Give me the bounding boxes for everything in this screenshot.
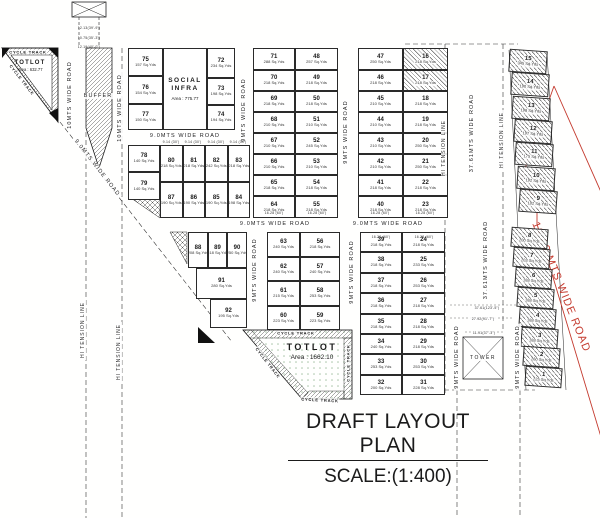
buffer-strip [86, 48, 112, 168]
plot-area: 250 Sq.Yds [370, 60, 391, 65]
plot-area: 210 Sq.Yds [370, 165, 391, 170]
plot-25: 25233 Sq.Yds [402, 252, 445, 272]
buffer-label: BUFFER [82, 93, 115, 99]
plot-area: 190 Sq.Yds [518, 85, 541, 91]
totlot-area: Area : 1662.10 [268, 354, 356, 361]
plot-area: 253 Sq.Yds [413, 365, 434, 370]
plot-area: 190 Sq.Yds [206, 201, 227, 206]
plot-57: 57240 Sq.Yds [300, 257, 340, 282]
plot-area: 210 Sq.Yds [264, 123, 285, 128]
plot-34: 34240 Sq.Yds [360, 334, 402, 354]
plot-area: 182 Sq.Yds [526, 201, 549, 207]
plot-area: 200 Sq.Yds [518, 238, 541, 244]
totlot-name: TOTLOT [268, 342, 356, 352]
plot-81: 81218 Sq.Yds [183, 145, 206, 182]
plot-area: 218 Sq.Yds [414, 60, 437, 65]
plot-29: 29218 Sq.Yds [402, 334, 445, 354]
plot-area: 198 Sq.Yds [228, 201, 249, 206]
plot-area: 210 Sq.Yds [370, 144, 391, 149]
plot-82: 82242 Sq.Yds [205, 145, 228, 182]
dimension-label: 16.28 (60') [416, 211, 435, 215]
road-label: 37.61MTS WIDE ROAD [483, 219, 489, 301]
plot-80: 80218 Sq.Yds [160, 145, 183, 182]
dimension-label: 12.13(39'-9") [78, 26, 101, 30]
plot-74: 74194 Sq.Yds [207, 105, 235, 130]
plot-area: 240 Sq.Yds [273, 270, 294, 275]
road-label: 9MTS WIDE ROAD [454, 323, 460, 390]
plot-area: 233 Sq.Yds [413, 263, 434, 268]
plot-66: 66210 Sq.Yds [253, 154, 295, 175]
plot-43: 43210 Sq.Yds [358, 133, 403, 154]
plot-area: 208 Sq.Yds [188, 251, 208, 256]
plot-35: 35218 Sq.Yds [360, 314, 402, 334]
plot-area: 218 Sq.Yds [183, 164, 204, 169]
plot-68: 68210 Sq.Yds [253, 112, 295, 133]
plot-22: 22218 Sq.Yds [403, 175, 448, 196]
plot-47: 47250 Sq.Yds [358, 48, 403, 70]
plot-area: 218 Sq.Yds [415, 123, 436, 128]
plot-area: 218 Sq.Yds [370, 186, 391, 191]
social-infra-area: Area : 775.77 [171, 96, 198, 101]
plot-area: 188 Sq.Yds [528, 337, 551, 343]
dimension-label: 9.14 (30') [208, 140, 225, 144]
plot-83: 83218 Sq.Yds [228, 145, 251, 182]
plot-area: 260 Sq.Yds [530, 357, 553, 363]
plot-91: 91280 Sq.Yds [196, 268, 247, 299]
plan-scale: SCALE:(1:400) [288, 466, 488, 488]
plan-title: DRAFT LAYOUT PLAN [288, 410, 488, 461]
road-label: 9MTS WIDE ROAD [343, 98, 349, 165]
plot-area: 218 Sq.Yds [371, 263, 392, 268]
tower-label: TOWER [469, 355, 497, 361]
plot-78: 78140 Sq.Yds [128, 145, 160, 172]
dimension-label: 16.28 (60') [372, 235, 391, 239]
plot-6: 6188 Sq.Yds [514, 267, 552, 289]
plot-area: 210 Sq.Yds [306, 165, 327, 170]
plot-area: 218 Sq.Yds [413, 304, 434, 309]
title-block: DRAFT LAYOUT PLAN SCALE:(1:400) [288, 410, 488, 488]
plot-92: 92195 Sq.Yds [210, 299, 247, 328]
plot-area: 242 Sq.Yds [206, 164, 227, 169]
plot-48: 48257 Sq.Yds [295, 48, 338, 70]
plot-area: 280 Sq.Yds [211, 284, 232, 289]
plot-area: 234 Sq.Yds [211, 64, 232, 69]
road-label: 9MTS WIDE ROAD [349, 238, 355, 305]
plot-30: 30253 Sq.Yds [402, 354, 445, 374]
cycle-track-label: CYCLE TRACK [276, 331, 315, 336]
road-label: 10MTS WIDE ROAD [67, 59, 73, 131]
dimension-label: 16.28 (60') [415, 235, 434, 239]
dimension-label: 16.28 (60') [308, 211, 327, 215]
dimension-label: 37.61(123'-5") [473, 306, 502, 310]
dimension-label: 16.28 (60') [265, 211, 284, 215]
plot-37: 37218 Sq.Yds [360, 273, 402, 293]
plot-46: 46218 Sq.Yds [358, 70, 403, 91]
plot-area: 240 Sq.Yds [273, 245, 294, 250]
plot-86: 86190 Sq.Yds [183, 182, 206, 218]
layout-plan-canvas: SOCIAL INFRA Area : 775.77 TOTLOT Area :… [0, 0, 600, 518]
plot-44: 44210 Sq.Yds [358, 112, 403, 133]
plot-area: 218 Sq.Yds [310, 245, 331, 250]
plot-area: 218 Sq.Yds [371, 325, 392, 330]
hi-tension-label: HI TENSION LINE [80, 300, 86, 360]
plot-area: 210 Sq.Yds [370, 102, 391, 107]
plot-area: 253 Sq.Yds [371, 365, 392, 370]
plot-area: 218 Sq.Yds [413, 243, 434, 248]
plot-33: 33253 Sq.Yds [360, 354, 402, 374]
plot-area: 218 Sq.Yds [306, 186, 327, 191]
plot-area: 240 Sq.Yds [371, 345, 392, 350]
plot-area: 203 Sq.Yds [520, 258, 543, 264]
road-label: 9.0MTS WIDE ROAD [148, 133, 222, 139]
totlot-area: Area : 632.77 [15, 67, 45, 72]
road-label: 9MTS WIDE ROAD [241, 76, 247, 143]
plot-54: 54218 Sq.Yds [295, 175, 338, 196]
dimension-label: 27.92(91'-7") [470, 317, 497, 321]
plot-area: 218 Sq.Yds [413, 345, 434, 350]
dimension-label: 12.19(40'-0") [78, 45, 101, 49]
plot-72: 72234 Sq.Yds [207, 48, 235, 78]
hi-tension-label: HI TENSION LINE [116, 322, 122, 382]
plot-area: 250 Sq.Yds [227, 251, 247, 256]
plot-area: 150 Sq.Yds [135, 118, 156, 123]
plot-area: 210 Sq.Yds [264, 165, 285, 170]
plot-area: 140 Sq.Yds [134, 187, 155, 192]
plot-area: 140 Sq.Yds [134, 159, 155, 164]
plot-area: 240 Sq.Yds [310, 270, 331, 275]
plot-13: 13198 Sq.Yds [511, 95, 551, 121]
plot-area: 218 Sq.Yds [264, 81, 285, 86]
plot-area: 228 Sq.Yds [413, 386, 434, 391]
plot-17: 17218 Sq.Yds [403, 70, 448, 91]
plot-area: 218 Sq.Yds [264, 186, 285, 191]
plot-area: 218 Sq.Yds [208, 251, 227, 256]
road-label: 9MTS WIDE ROAD [515, 323, 521, 390]
plot-58: 58253 Sq.Yds [300, 281, 340, 306]
plot-area: 188 Sq.Yds [522, 278, 545, 284]
plot-16: 16218 Sq.Yds [403, 48, 448, 70]
plot-area: 245 Sq.Yds [306, 144, 327, 149]
social-infra-block: SOCIAL INFRA Area : 775.77 [163, 48, 207, 130]
plot-area: 198 Sq.Yds [211, 92, 232, 97]
plot-31: 31228 Sq.Yds [402, 375, 445, 395]
plot-area: 223 Sq.Yds [310, 319, 331, 324]
plot-36: 36218 Sq.Yds [360, 293, 402, 313]
plot-area: 188 Sq.Yds [524, 298, 547, 304]
plot-28: 28218 Sq.Yds [402, 314, 445, 334]
plot-area: 250 Sq.Yds [415, 144, 436, 149]
plot-50: 50218 Sq.Yds [295, 91, 338, 112]
road-label: 9.0MTS WIDE ROAD [351, 221, 425, 227]
plot-53: 53210 Sq.Yds [295, 154, 338, 175]
dimension-label: 9.14 (30') [163, 140, 180, 144]
plot-area: 218 Sq.Yds [228, 164, 249, 169]
plot-area: 257 Sq.Yds [306, 60, 327, 65]
road-label: 9MTS WIDE ROAD [252, 236, 258, 303]
dimension-label: 9.14 (30') [230, 140, 247, 144]
plot-85: 85190 Sq.Yds [205, 182, 228, 218]
plot-87: 87190 Sq.Yds [160, 182, 183, 218]
plot-12: 12197 Sq.Yds [513, 119, 553, 145]
dimension-label: 10.75(35'-3") [78, 36, 101, 40]
plot-59: 59223 Sq.Yds [300, 306, 340, 331]
plot-4: 4188 Sq.Yds [518, 306, 556, 328]
plot-10: 10192 Sq.Yds [516, 165, 556, 191]
plot-15: 15345 Sq.Yds [508, 49, 548, 75]
plot-area: 218 Sq.Yds [264, 102, 285, 107]
plot-area: 188 Sq.Yds [526, 317, 549, 323]
plot-area: 288 Sq.Yds [264, 60, 285, 65]
plot-8: 8200 Sq.Yds [510, 227, 548, 249]
plot-area: 218 Sq.Yds [306, 81, 327, 86]
plot-area: 154 Sq.Yds [135, 91, 156, 96]
dimension-label: 16.28 (60') [371, 211, 390, 215]
plot-area: 218 Sq.Yds [371, 284, 392, 289]
plot-area: 218 Sq.Yds [161, 164, 182, 169]
plot-89: 89218 Sq.Yds [208, 232, 227, 268]
plot-area: 195 Sq.Yds [218, 314, 239, 319]
plot-18: 18218 Sq.Yds [403, 91, 448, 112]
plot-62: 62240 Sq.Yds [267, 257, 300, 282]
plot-77: 77150 Sq.Yds [128, 104, 163, 130]
plot-area: 200 Sq.Yds [371, 386, 392, 391]
plot-area: 192 Sq.Yds [524, 178, 547, 184]
plot-area: 190 Sq.Yds [183, 201, 204, 206]
plot-11: 11175 Sq.Yds [515, 142, 555, 168]
plot-38: 38218 Sq.Yds [360, 252, 402, 272]
plot-9: 9182 Sq.Yds [518, 188, 558, 214]
plot-71: 71288 Sq.Yds [253, 48, 295, 70]
plot-area: 345 Sq.Yds [516, 62, 539, 68]
plot-63: 63240 Sq.Yds [267, 232, 300, 257]
plot-area: 225 Sq.Yds [532, 377, 555, 383]
plot-45: 45210 Sq.Yds [358, 91, 403, 112]
plot-area: 253 Sq.Yds [310, 294, 331, 299]
plot-area: 175 Sq.Yds [523, 155, 546, 161]
plot-27: 27218 Sq.Yds [402, 293, 445, 313]
plot-79: 79140 Sq.Yds [128, 172, 160, 200]
plot-area: 190 Sq.Yds [161, 201, 182, 206]
plot-area: 210 Sq.Yds [306, 123, 327, 128]
plot-area: 157 Sq.Yds [135, 63, 156, 68]
totlot-name: TOTLOT [8, 60, 52, 66]
plot-area: 197 Sq.Yds [521, 131, 544, 137]
plot-84: 84198 Sq.Yds [228, 182, 251, 218]
plot-69: 69218 Sq.Yds [253, 91, 295, 112]
plot-14: 14190 Sq.Yds [510, 72, 550, 98]
plot-area: 218 Sq.Yds [371, 243, 392, 248]
plot-65: 65218 Sq.Yds [253, 175, 295, 196]
plot-90: 90250 Sq.Yds [227, 232, 247, 268]
cycle-track-label: CYCLE TRACK [8, 50, 47, 55]
plot-42: 42210 Sq.Yds [358, 154, 403, 175]
plot-area: 223 Sq.Yds [273, 319, 294, 324]
plot-51: 51210 Sq.Yds [295, 112, 338, 133]
plot-7: 7203 Sq.Yds [512, 247, 550, 269]
plot-67: 67210 Sq.Yds [253, 133, 295, 154]
plot-area: 215 Sq.Yds [273, 294, 294, 299]
totlot-bottom-label: TOTLOT Area : 1662.10 [268, 342, 356, 361]
plot-area: 218 Sq.Yds [415, 186, 436, 191]
plot-area: 218 Sq.Yds [413, 325, 434, 330]
plot-area: 194 Sq.Yds [211, 118, 232, 123]
road-label: 10MTS WIDE ROAD [117, 72, 123, 144]
plot-area: 253 Sq.Yds [413, 284, 434, 289]
plot-73: 73198 Sq.Yds [207, 78, 235, 105]
road-label: 9.0MTS WIDE ROAD [238, 221, 312, 227]
plot-area: 218 Sq.Yds [306, 102, 327, 107]
plot-area: 210 Sq.Yds [370, 123, 391, 128]
social-infra-name: SOCIAL INFRA [164, 77, 206, 93]
cycle-track-label: CYCLE TRACK [346, 343, 351, 382]
plot-area: 218 Sq.Yds [415, 102, 436, 107]
hi-tension-label: HI TENSION LINE [441, 118, 447, 178]
plot-area: 218 Sq.Yds [414, 81, 437, 86]
plot-area: 218 Sq.Yds [370, 81, 391, 86]
plot-32: 32200 Sq.Yds [360, 375, 402, 395]
plot-area: 198 Sq.Yds [520, 108, 543, 114]
plot-1: 1225 Sq.Yds [524, 366, 562, 388]
plot-area: 210 Sq.Yds [264, 144, 285, 149]
plot-41: 41218 Sq.Yds [358, 175, 403, 196]
plot-61: 61215 Sq.Yds [267, 281, 300, 306]
plot-75: 75157 Sq.Yds [128, 48, 163, 76]
plot-88: 88208 Sq.Yds [188, 232, 208, 268]
plot-60: 60223 Sq.Yds [267, 306, 300, 331]
plot-49: 49218 Sq.Yds [295, 70, 338, 91]
dimension-label: 11.91(37'-3") [471, 331, 497, 335]
dimension-label: 9.14 (30') [185, 140, 202, 144]
plot-26: 26253 Sq.Yds [402, 273, 445, 293]
plot-52: 52245 Sq.Yds [295, 133, 338, 154]
road-label: 37.61MTS WIDE ROAD [469, 92, 475, 174]
plot-56: 56218 Sq.Yds [300, 232, 340, 257]
plot-area: 218 Sq.Yds [371, 304, 392, 309]
hi-tension-label: HI TENSION LINE [499, 110, 505, 170]
plot-76: 76154 Sq.Yds [128, 76, 163, 104]
plot-5: 5188 Sq.Yds [516, 286, 554, 308]
plot-70: 70218 Sq.Yds [253, 70, 295, 91]
totlot-bottom-shape [243, 330, 352, 399]
plot-area: 250 Sq.Yds [415, 165, 436, 170]
